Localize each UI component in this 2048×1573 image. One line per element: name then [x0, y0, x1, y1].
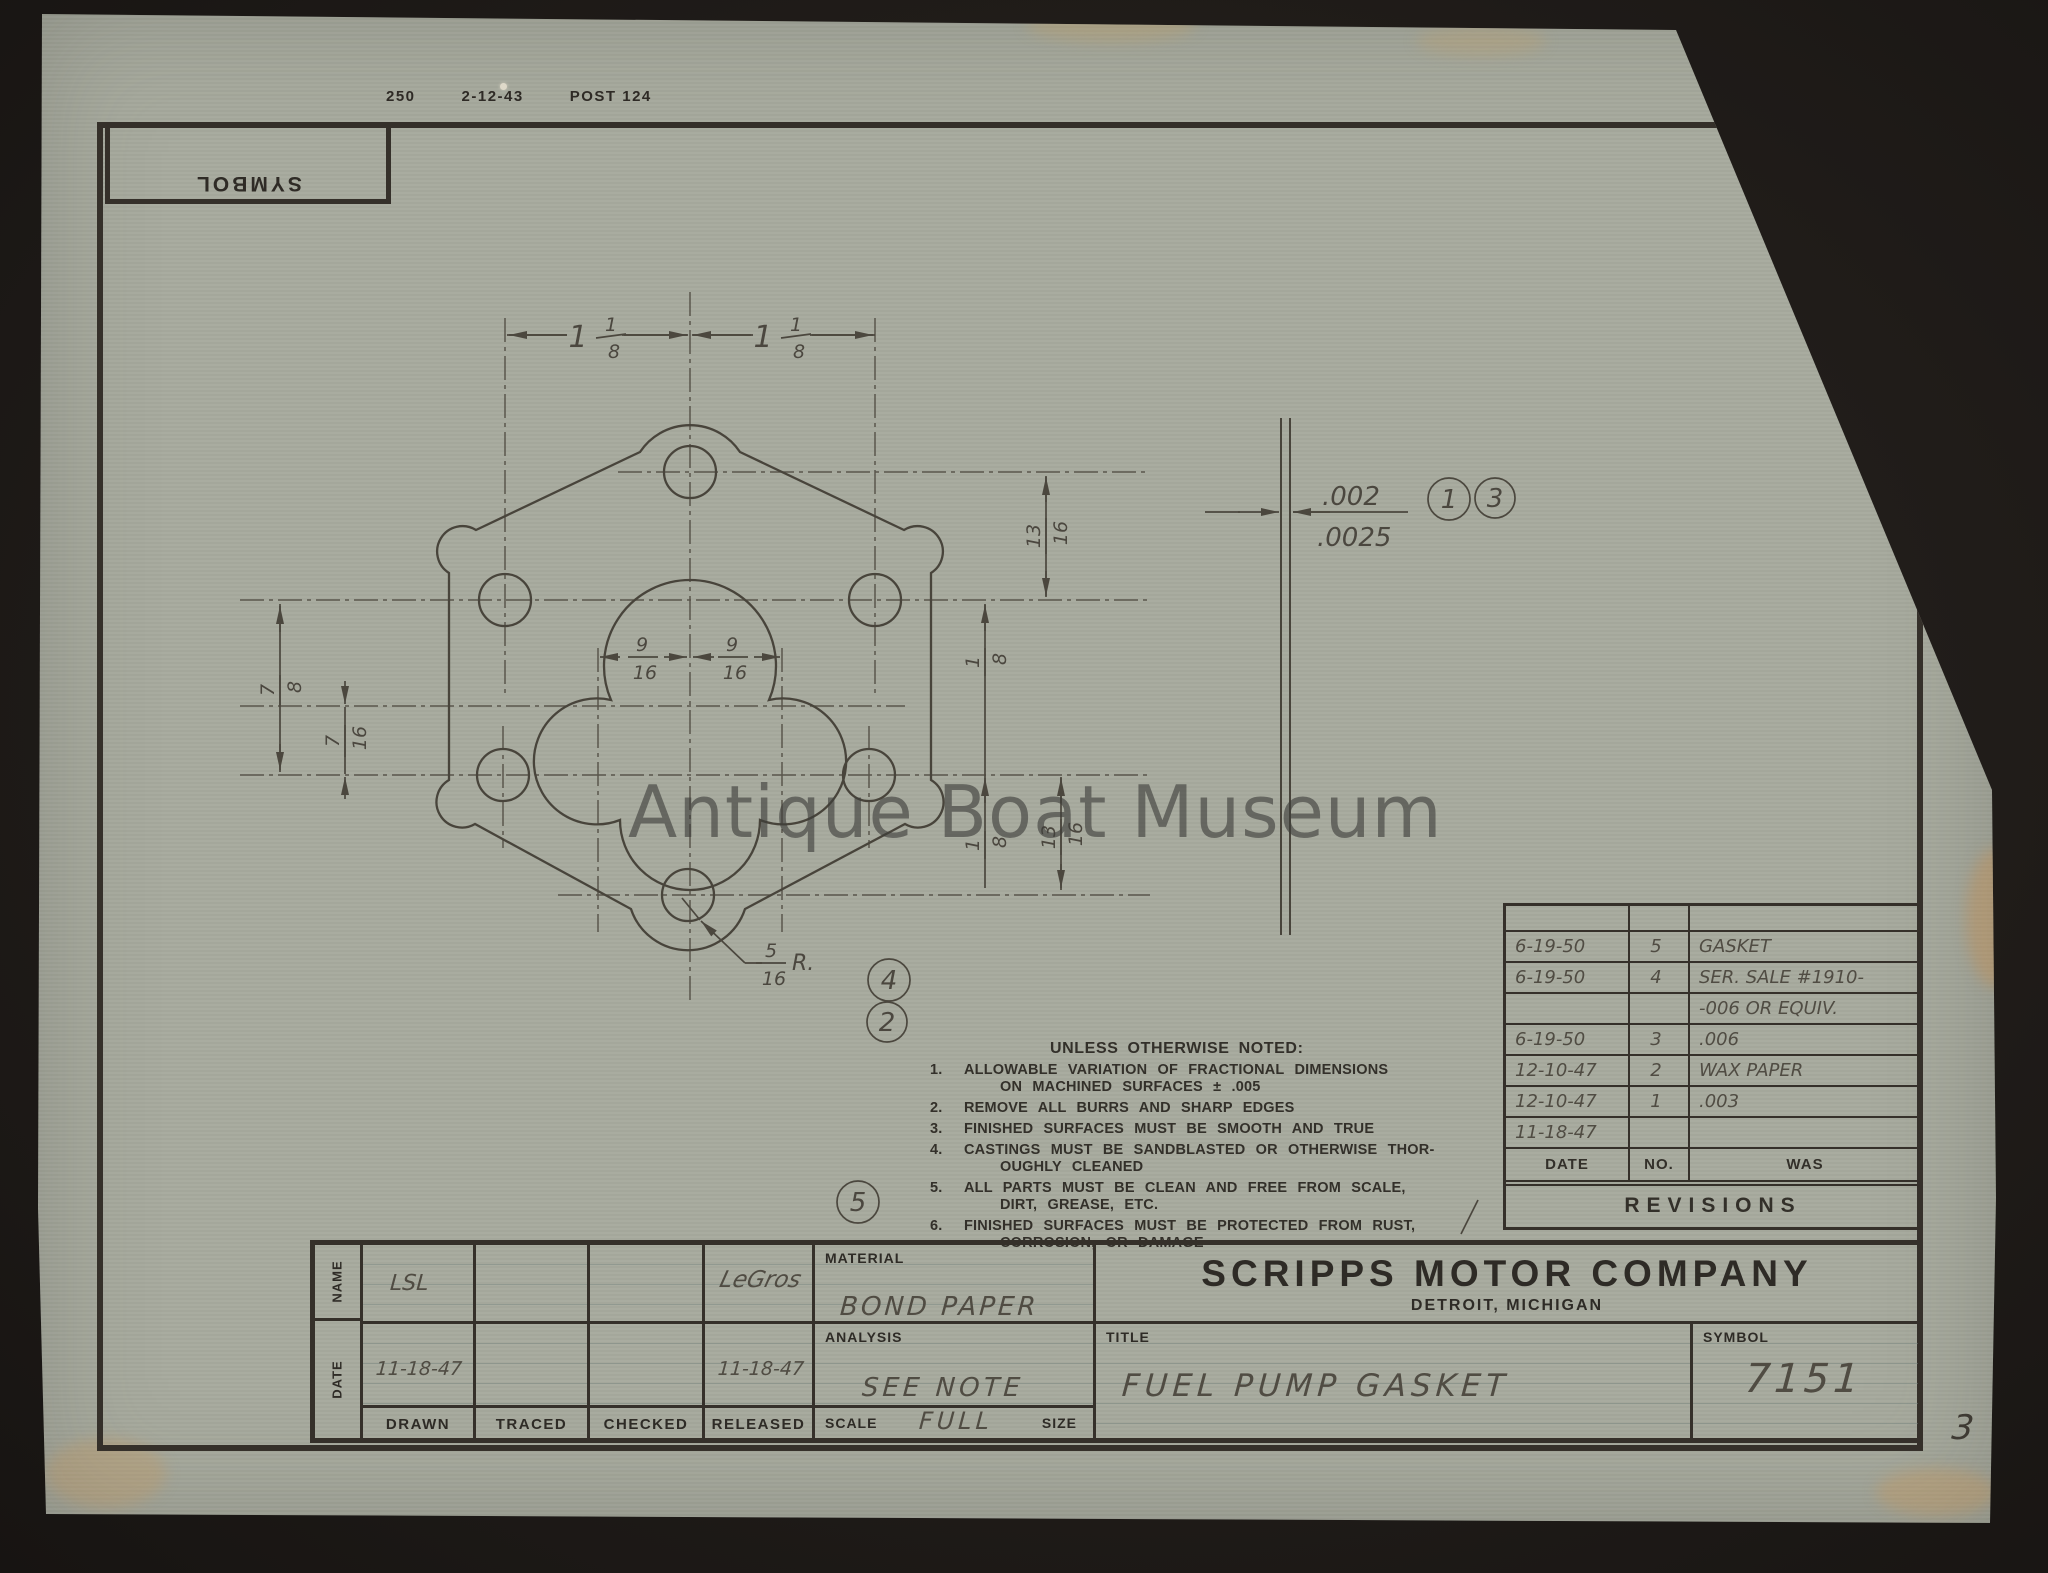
- paper-sheet: 2502-12-43POST 124 SYMBOL: [36, 8, 1996, 1523]
- company-location: DETROIT, MICHIGAN: [1096, 1297, 1918, 1315]
- rev-date: 12-10-47: [1506, 1087, 1628, 1118]
- note-line: ALLOWABLE VARIATION OF FRACTIONAL DIMENS…: [964, 1062, 1388, 1079]
- company-title-symbol: SCRIPPS MOTOR COMPANY DETROIT, MICHIGAN …: [1093, 1245, 1918, 1438]
- dim-top-right: 1 1 8: [753, 314, 811, 363]
- traced-date: [473, 1321, 587, 1405]
- svg-text:16: 16: [762, 968, 786, 990]
- rev-date: 11-18-47: [1506, 1118, 1628, 1149]
- watermark-text: Antique Boat Museum: [628, 770, 1443, 854]
- note-number: 4.: [930, 1142, 964, 1176]
- rev-date: 6-19-50: [1506, 1025, 1628, 1056]
- analysis-label: ANALYSIS: [815, 1324, 1093, 1345]
- symbol-cell: SYMBOL 7151: [1690, 1324, 1918, 1438]
- released-date: 11-18-47: [703, 1324, 814, 1380]
- dim-left-inner: 7 16: [322, 725, 371, 757]
- rev-date: [1506, 906, 1628, 932]
- svg-text:13: 13: [1023, 524, 1045, 548]
- note-item: 2. REMOVE ALL BURRS AND SHARP EDGES: [930, 1100, 1510, 1117]
- svg-text:1: 1: [568, 320, 587, 355]
- note-line: ALL PARTS MUST BE CLEAN AND FREE FROM SC…: [964, 1180, 1406, 1197]
- analysis-value: SEE NOTE: [813, 1345, 1095, 1403]
- scale-cell: SCALE FULL SIZE: [815, 1405, 1093, 1438]
- symbol-label: SYMBOL: [1693, 1324, 1918, 1345]
- svg-text:9: 9: [636, 634, 648, 656]
- dim-right-mid: 1 8: [962, 648, 1011, 676]
- rev-no: 1: [1628, 1087, 1690, 1118]
- rev-no: 4: [1628, 963, 1690, 994]
- dim-thickness: .002 .0025: [1317, 482, 1391, 553]
- svg-text:8: 8: [793, 341, 805, 363]
- svg-text:1: 1: [962, 656, 984, 668]
- revisions-caption: REVISIONS: [1506, 1180, 1920, 1227]
- svg-text:8: 8: [989, 653, 1011, 665]
- col-label-traced: TRACED: [473, 1405, 587, 1438]
- title-block-label-column: NAME DATE: [315, 1245, 360, 1438]
- note-item: 4. CASTINGS MUST BE SANDBLASTED OR OTHER…: [930, 1142, 1510, 1176]
- rev-was: -006 OR EQUIV.: [1690, 994, 1920, 1025]
- rev-header-no: NO.: [1628, 1149, 1690, 1180]
- rev-no: 5: [1628, 932, 1690, 963]
- rev-was: WAX PAPER: [1690, 1056, 1920, 1087]
- note-line: CASTINGS MUST BE SANDBLASTED OR OTHERWIS…: [964, 1142, 1434, 1159]
- svg-text:2: 2: [879, 1008, 896, 1038]
- balloon-1: 1: [1428, 478, 1470, 520]
- balloon-2: 2: [867, 1002, 907, 1042]
- svg-text:R.: R.: [792, 951, 814, 976]
- rev-header-date: DATE: [1506, 1149, 1628, 1180]
- note-number: 2.: [930, 1100, 964, 1117]
- title-value: FUEL PUMP GASKET: [1121, 1368, 1511, 1404]
- svg-text:1: 1: [753, 320, 772, 355]
- rev-was: .003: [1690, 1087, 1920, 1118]
- company-block: SCRIPPS MOTOR COMPANY DETROIT, MICHIGAN: [1096, 1245, 1918, 1321]
- svg-text:16: 16: [1050, 521, 1072, 545]
- rev-was: .006: [1690, 1025, 1920, 1056]
- svg-text:9: 9: [726, 634, 738, 656]
- svg-text:16: 16: [349, 726, 371, 750]
- note-line: REMOVE ALL BURRS AND SHARP EDGES: [964, 1100, 1294, 1117]
- title-cell: TITLE FUEL PUMP GASKET: [1096, 1324, 1690, 1438]
- svg-text:.0025: .0025: [1317, 523, 1391, 553]
- note-number: 3.: [930, 1121, 964, 1138]
- note-line: ON MACHINED SURFACES ± .005: [964, 1079, 1388, 1096]
- checked-name: [587, 1245, 702, 1321]
- rev-no: [1628, 906, 1690, 932]
- balloon-5: 5: [837, 1181, 879, 1223]
- rev-header-was: WAS: [1690, 1149, 1920, 1180]
- traced-name: [473, 1245, 587, 1321]
- drawn-date: 11-18-47: [361, 1324, 475, 1380]
- rev-date: 6-19-50: [1506, 963, 1628, 994]
- note-item: 5. ALL PARTS MUST BE CLEAN AND FREE FROM…: [930, 1180, 1510, 1214]
- rev-date: 12-10-47: [1506, 1056, 1628, 1087]
- notes-heading: UNLESS OTHERWISE NOTED:: [1050, 1040, 1510, 1058]
- svg-text:1: 1: [605, 314, 617, 336]
- balloon-3: 3: [1475, 478, 1515, 518]
- company-name: SCRIPPS MOTOR COMPANY: [1096, 1245, 1918, 1295]
- checked-date: [587, 1321, 702, 1405]
- note-line: OUGHLY CLEANED: [964, 1159, 1434, 1176]
- symbol-value: 7151: [1743, 1356, 1864, 1402]
- balloon-4: 4: [868, 959, 910, 1001]
- svg-text:8: 8: [608, 341, 620, 363]
- svg-text:1: 1: [1441, 485, 1458, 515]
- svg-text:16: 16: [633, 662, 657, 684]
- svg-text:7: 7: [257, 684, 279, 696]
- signature-grid: LSL LeGros 11-18-47 11-18-47 DRAWN TRACE…: [360, 1245, 812, 1438]
- note-number: 5.: [930, 1180, 964, 1214]
- dim-top-left: 1 1 8: [568, 314, 626, 363]
- note-item: 3. FINISHED SURFACES MUST BE SMOOTH AND …: [930, 1121, 1510, 1138]
- title-block: NAME DATE LSL LeGros 11-18-47 11-18-47 D…: [310, 1240, 1923, 1443]
- note-line: FINISHED SURFACES MUST BE PROTECTED FROM…: [964, 1218, 1415, 1235]
- dim-bore-left: 9 16: [628, 634, 658, 684]
- revisions-table: 6-19-50 5 GASKET 6-19-50 4 SER. SALE #19…: [1503, 903, 1923, 1230]
- dim-left-outer: 7 8: [257, 675, 306, 705]
- svg-text:16: 16: [723, 662, 747, 684]
- rev-date: 6-19-50: [1506, 932, 1628, 963]
- svg-text:8: 8: [284, 681, 306, 693]
- general-notes: UNLESS OTHERWISE NOTED: 1. ALLOWABLE VAR…: [930, 1040, 1510, 1252]
- name-row-label: NAME: [315, 1245, 360, 1321]
- svg-text:3: 3: [1487, 484, 1504, 514]
- analysis-cell: ANALYSIS SEE NOTE: [815, 1321, 1093, 1405]
- title-label: TITLE: [1096, 1324, 1690, 1345]
- note-item: 1. ALLOWABLE VARIATION OF FRACTIONAL DIM…: [930, 1062, 1510, 1096]
- col-label-drawn: DRAWN: [360, 1405, 473, 1438]
- svg-text:.002: .002: [1322, 482, 1380, 512]
- svg-text:1: 1: [790, 314, 802, 336]
- material-cell: MATERIAL BOND PAPER: [815, 1245, 1093, 1321]
- rev-was: GASKET: [1690, 932, 1920, 963]
- scale-value: FULL: [918, 1407, 994, 1435]
- svg-text:4: 4: [881, 966, 898, 996]
- col-label-checked: CHECKED: [587, 1405, 702, 1438]
- material-analysis-scale: MATERIAL BOND PAPER ANALYSIS SEE NOTE SC…: [812, 1245, 1093, 1438]
- scale-label: SCALE: [815, 1415, 877, 1431]
- margin-page-number: 3: [1950, 1408, 1976, 1448]
- note-line: DIRT, GREASE, ETC.: [964, 1197, 1406, 1214]
- rev-was: SER. SALE #1910-: [1690, 963, 1920, 994]
- rev-no: [1628, 994, 1690, 1025]
- rev-no: 3: [1628, 1025, 1690, 1056]
- date-row-label: DATE: [315, 1321, 360, 1438]
- released-signature: LeGros: [699, 1245, 818, 1293]
- scanned-engineering-drawing: { "stamp": { "number": "250", "date": "2…: [0, 0, 2048, 1573]
- material-label: MATERIAL: [815, 1245, 1093, 1266]
- svg-text:5: 5: [765, 940, 777, 962]
- note-line: FINISHED SURFACES MUST BE SMOOTH AND TRU…: [964, 1121, 1374, 1138]
- rev-date: [1506, 994, 1628, 1025]
- centerlines: [240, 292, 1150, 1002]
- rev-no: [1628, 1118, 1690, 1149]
- col-label-released: RELEASED: [702, 1405, 812, 1438]
- dimension-labels: 1 1 8 1 1 8 9 16 9 16 7: [257, 314, 1391, 990]
- dim-bore-right: 9 16: [718, 634, 748, 684]
- svg-text:5: 5: [850, 1188, 867, 1218]
- note-number: 1.: [930, 1062, 964, 1096]
- size-label: SIZE: [1032, 1415, 1077, 1431]
- dim-corner-radius: 5 16 R.: [756, 940, 814, 990]
- rev-was: [1690, 1118, 1920, 1149]
- dim-right-upper: 13 16: [1023, 518, 1072, 554]
- svg-text:7: 7: [322, 735, 344, 747]
- rev-was: [1690, 906, 1920, 932]
- rev-no: 2: [1628, 1056, 1690, 1087]
- drawn-name: LSL: [361, 1245, 475, 1296]
- material-value: BOND PAPER: [813, 1266, 1095, 1322]
- gasket-edge-view: [1281, 418, 1290, 935]
